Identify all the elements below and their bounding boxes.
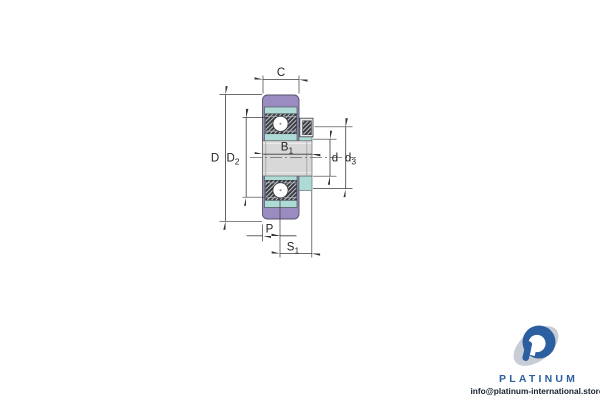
ball-center-dot — [280, 189, 282, 191]
set-screw — [300, 118, 313, 137]
platinum-logo-icon — [509, 316, 565, 372]
watermark-email: info@platinum-international.store — [467, 386, 600, 396]
dim-C: C — [263, 67, 299, 94]
set-screw-core — [303, 121, 312, 135]
dim-label-d: d — [332, 153, 338, 165]
dim-label-S1: S1 — [287, 242, 300, 256]
watermark-brand: PLATINUM — [467, 373, 600, 385]
dim-label-D: D — [211, 153, 219, 165]
dim-label-P: P — [266, 224, 274, 236]
watermark: PLATINUM info@platinum-international.sto… — [467, 316, 600, 396]
dim-label-d3: d3 — [345, 153, 356, 167]
dim-label-D2: D2 — [226, 153, 239, 167]
page: C D D2 B1 — [0, 0, 600, 400]
bearing-row-bottom — [266, 180, 297, 200]
bearing-row-top — [266, 114, 297, 134]
collar-lower — [299, 176, 312, 190]
dim-label-C: C — [277, 67, 285, 79]
ball-center-dot — [280, 123, 282, 125]
bearing-unit — [263, 95, 314, 219]
